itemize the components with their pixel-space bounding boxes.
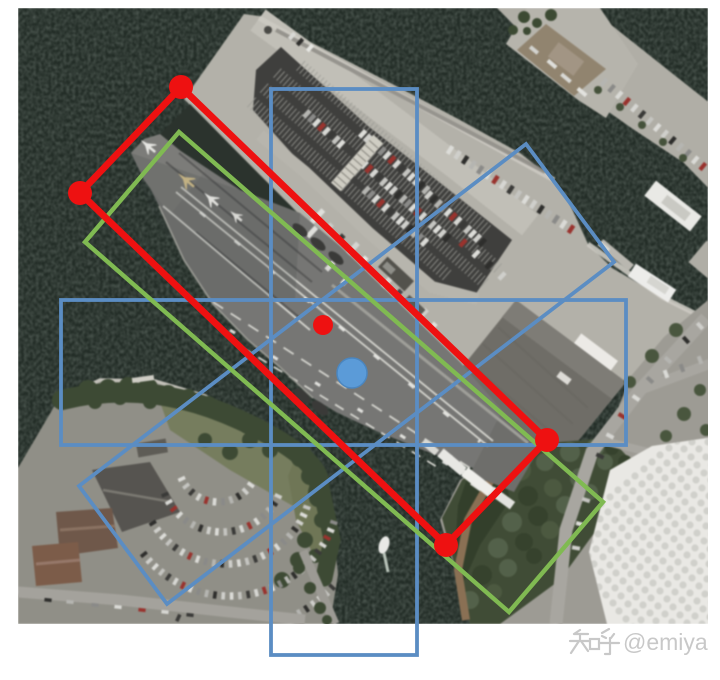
svg-text:@emiya: @emiya [623, 629, 708, 655]
